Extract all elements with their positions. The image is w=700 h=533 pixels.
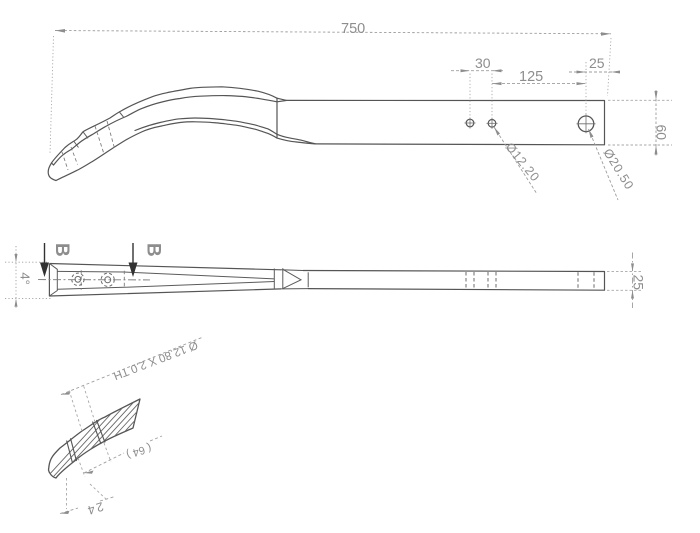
svg-text:30: 30 <box>475 55 491 71</box>
svg-text:Ø 12.80 X 2.0 TH: Ø 12.80 X 2.0 TH <box>112 338 200 381</box>
svg-text:4°: 4° <box>17 272 32 284</box>
svg-text:125: 125 <box>519 69 543 85</box>
svg-text:Ø12.20: Ø12.20 <box>503 140 543 184</box>
svg-text:25: 25 <box>589 55 605 71</box>
svg-text:24: 24 <box>84 499 105 518</box>
svg-text:Ø20.50: Ø20.50 <box>600 146 636 192</box>
svg-text:B: B <box>143 243 164 257</box>
svg-text:25: 25 <box>631 275 647 291</box>
svg-text:60: 60 <box>654 125 670 141</box>
svg-text:B: B <box>51 243 72 257</box>
svg-text:750: 750 <box>341 21 365 37</box>
svg-text:( 64 ): ( 64 ) <box>125 441 153 460</box>
